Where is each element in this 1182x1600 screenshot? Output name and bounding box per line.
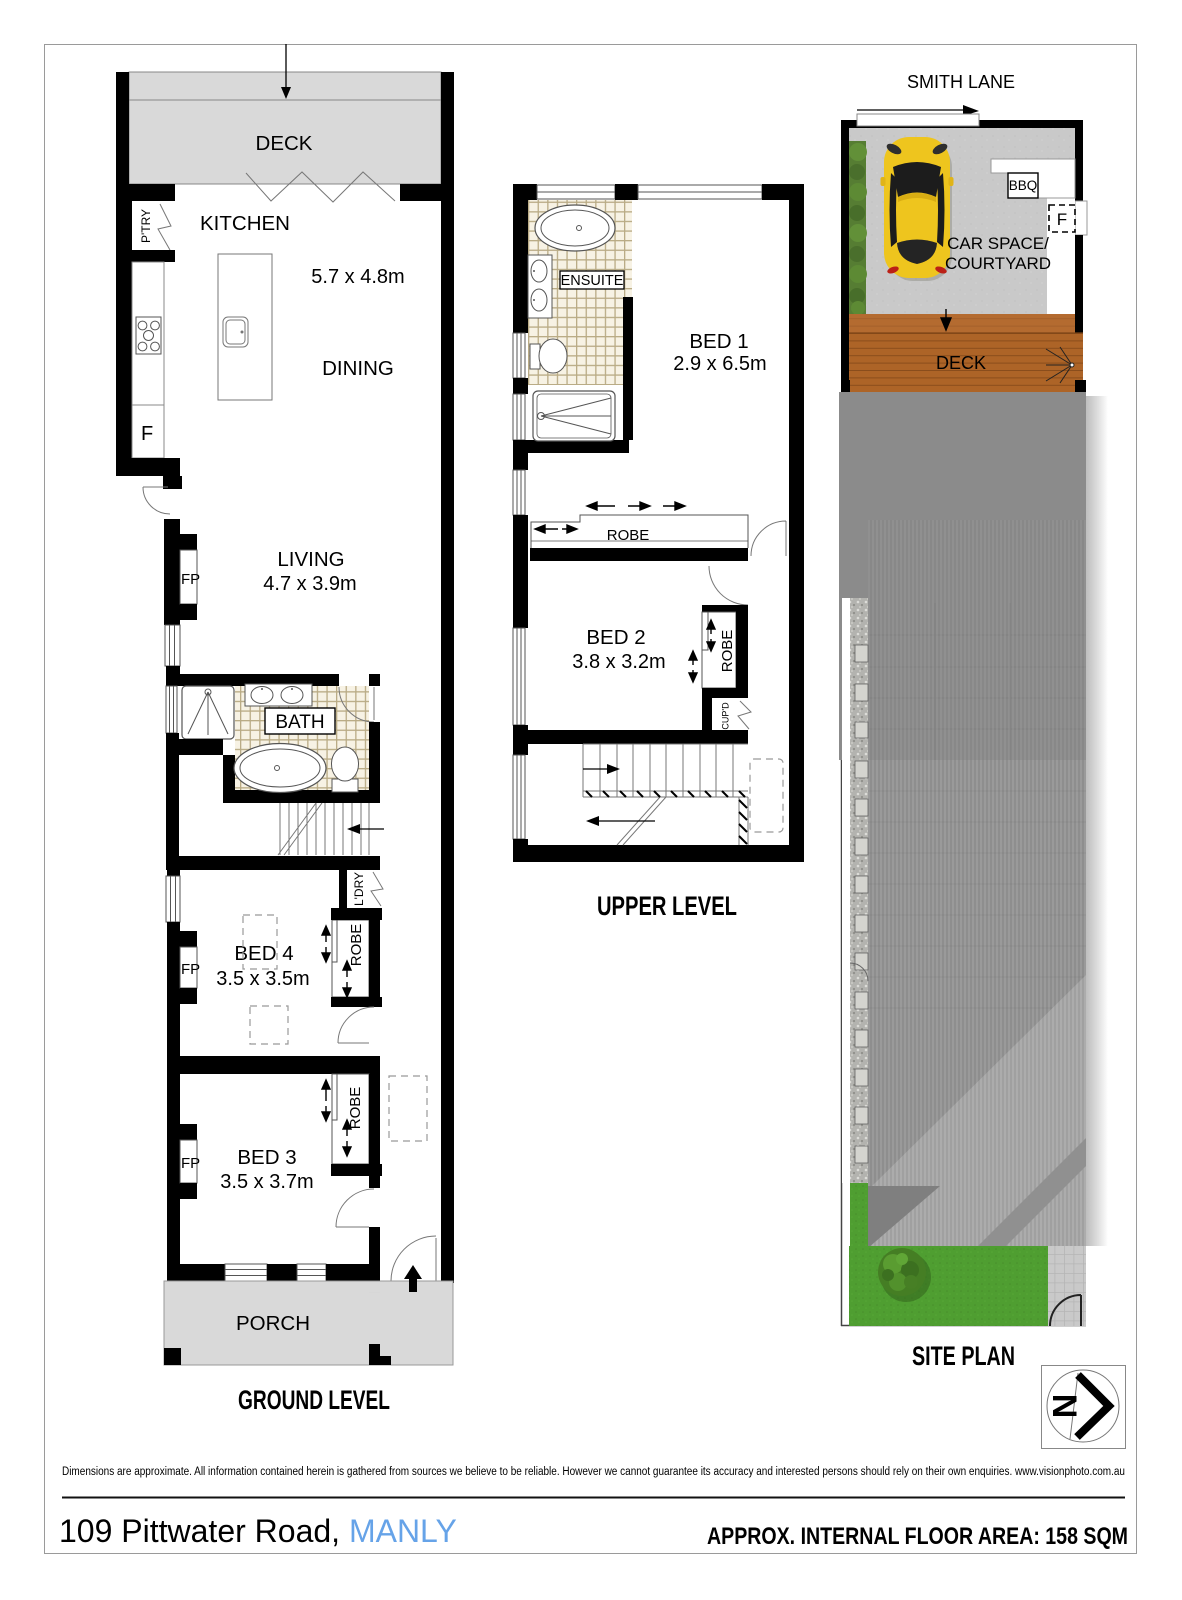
svg-text:L'DRY: L'DRY <box>352 872 366 906</box>
svg-text:Dimensions are approximate. Al: Dimensions are approximate. All informat… <box>62 1466 1125 1478</box>
svg-text:4.7 x 3.9m: 4.7 x 3.9m <box>263 573 356 595</box>
svg-text:DINING: DINING <box>322 357 394 380</box>
svg-text:CUP'D: CUP'D <box>720 702 730 730</box>
svg-text:GROUND LEVEL: GROUND LEVEL <box>238 1385 390 1415</box>
svg-text:LIVING: LIVING <box>277 548 344 571</box>
svg-text:F: F <box>141 423 153 445</box>
svg-text:P'TRY: P'TRY <box>139 209 153 243</box>
svg-text:FP: FP <box>181 571 200 588</box>
svg-text:UPPER LEVEL: UPPER LEVEL <box>597 891 737 921</box>
svg-text:ROBE: ROBE <box>348 924 365 967</box>
svg-text:PORCH: PORCH <box>236 1312 310 1335</box>
svg-text:ROBE: ROBE <box>719 630 736 673</box>
svg-text:ENSUITE: ENSUITE <box>561 273 624 289</box>
svg-text:BED 3: BED 3 <box>237 1146 296 1169</box>
svg-text:CAR SPACE/: CAR SPACE/ <box>947 234 1049 253</box>
svg-text:BATH: BATH <box>275 712 324 733</box>
svg-text:DECK: DECK <box>936 353 986 373</box>
svg-text:5.7 x 4.8m: 5.7 x 4.8m <box>311 266 404 288</box>
svg-text:BED 1: BED 1 <box>689 330 748 353</box>
svg-text:2.9 x 6.5m: 2.9 x 6.5m <box>673 353 766 375</box>
svg-text:ROBE: ROBE <box>347 1087 364 1130</box>
svg-text:3.8 x 3.2m: 3.8 x 3.2m <box>572 651 665 673</box>
svg-text:COURTYARD: COURTYARD <box>945 254 1051 273</box>
svg-text:DECK: DECK <box>256 132 313 155</box>
svg-text:BED 2: BED 2 <box>586 626 645 649</box>
svg-text:N: N <box>1045 1394 1083 1419</box>
svg-text:109 Pittwater Road, MANLY: 109 Pittwater Road, MANLY <box>59 1513 457 1549</box>
svg-text:KITCHEN: KITCHEN <box>200 212 290 235</box>
svg-text:APPROX. INTERNAL FLOOR AREA: 1: APPROX. INTERNAL FLOOR AREA: 158 SQM <box>707 1523 1128 1550</box>
svg-text:ROBE: ROBE <box>607 527 650 544</box>
svg-text:SMITH LANE: SMITH LANE <box>907 72 1015 92</box>
svg-text:FP: FP <box>181 1155 200 1172</box>
svg-text:3.5 x 3.5m: 3.5 x 3.5m <box>216 968 309 990</box>
svg-text:F: F <box>1057 210 1067 229</box>
svg-text:SITE PLAN: SITE PLAN <box>912 1341 1015 1371</box>
svg-text:3.5 x 3.7m: 3.5 x 3.7m <box>220 1171 313 1193</box>
svg-text:FP: FP <box>181 961 200 978</box>
svg-text:BBQ: BBQ <box>1009 178 1038 193</box>
